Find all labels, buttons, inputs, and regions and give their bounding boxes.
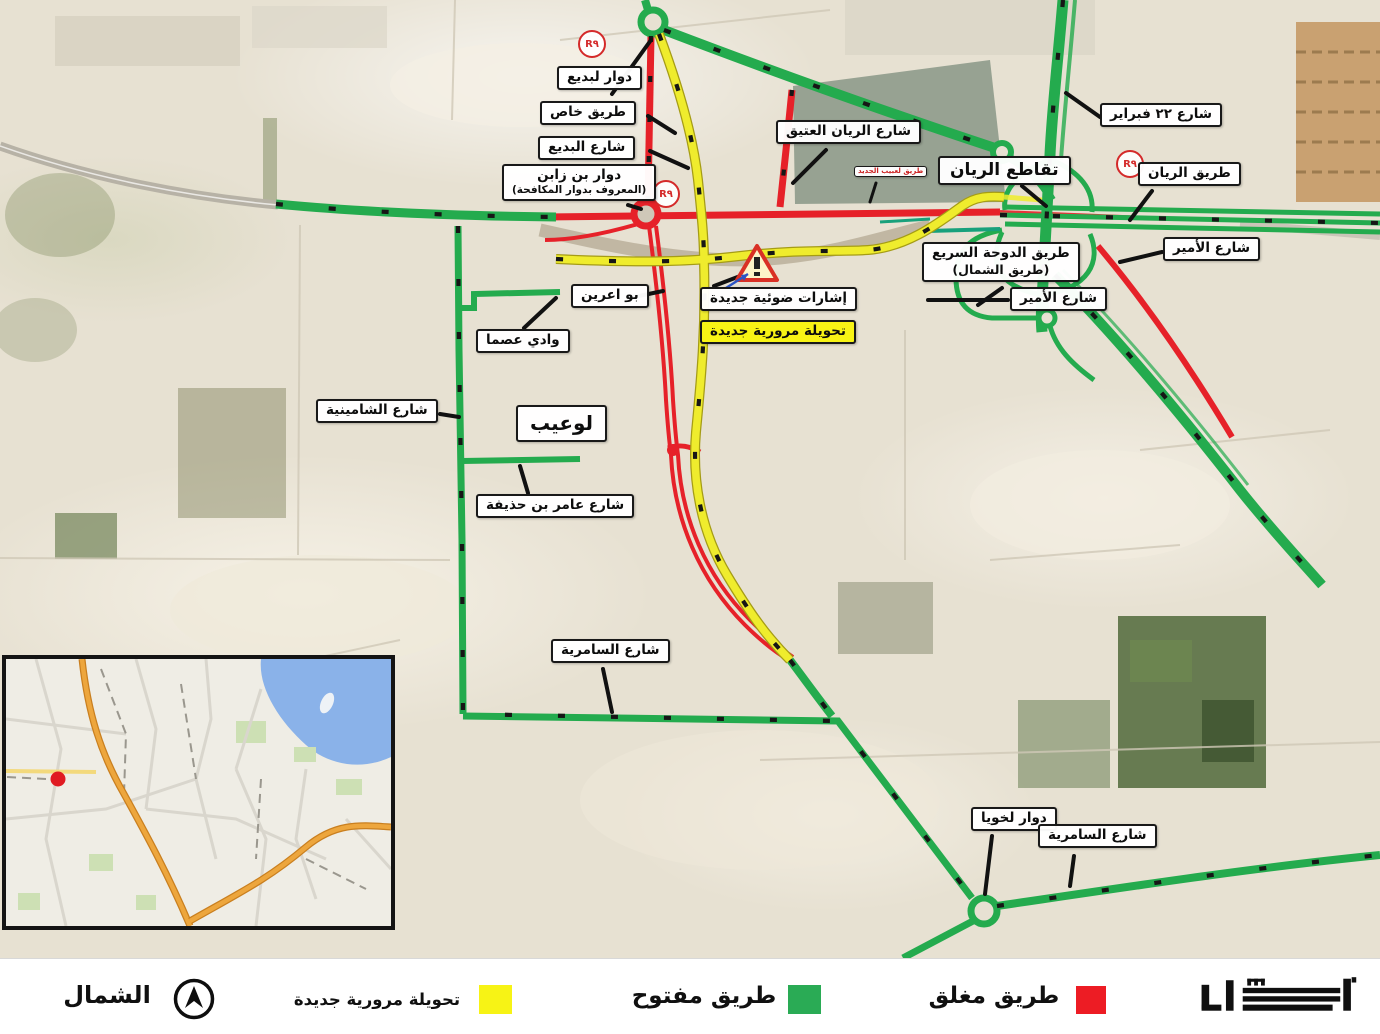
label-new-diversion: تحويلة مرورية جديدة: [700, 320, 856, 344]
label-new-signals: إشارات ضوئية جديدة: [700, 287, 857, 311]
route-badge-r: R٩: [652, 180, 680, 208]
satellite-map: دوار لبديع طريق خاص شارع البديع دوار بن …: [0, 0, 1380, 958]
label-samriya-street-west: شارع السامرية: [551, 639, 670, 663]
label-luaib-district: لوعيب: [516, 405, 607, 442]
label-bin-zaben-line2: (المعروف بدوار المكافحة): [512, 184, 646, 197]
ashghal-logo: [1197, 973, 1357, 1021]
label-private-road: طريق خاص: [540, 101, 636, 125]
label-amir-street-south: شارع الأمير: [1010, 287, 1107, 311]
north-compass-icon: [172, 977, 216, 1021]
label-old-rayyan-street: شارع الريان العتيق: [776, 120, 921, 144]
label-rayyan-intersection: تقاطع الريان: [938, 156, 1071, 185]
label-amer-bin-huthaifa-street: شارع عامر بن حذيفة: [476, 494, 634, 518]
locator-inset-map: [2, 655, 395, 930]
closed-road-east-west: [545, 212, 1000, 217]
label-wadi-asma: وادي عصما: [476, 329, 570, 353]
inset-graphics: [6, 659, 391, 926]
label-rayyan-road: طريق الريان: [1138, 162, 1241, 186]
legend-open-swatch: [788, 985, 821, 1014]
legend-open-label: طريق مفتوح: [628, 983, 780, 1009]
label-bin-zaben-roundabout: دوار بن زابن (المعروف بدوار المكافحة): [502, 164, 656, 201]
legend-north-label: الشمال: [48, 981, 166, 1009]
label-bin-zaben-line1: دوار بن زابن: [537, 167, 621, 183]
label-shamineya-street: شارع الشامينية: [316, 399, 438, 423]
legend-diversion-swatch: [479, 985, 512, 1014]
bin-zaben-roundabout-ring: [634, 202, 658, 226]
legend-closed-label: طريق مغلق: [920, 983, 1068, 1009]
open-road-shamineya: [458, 226, 463, 714]
legend-diversion-label: تحويلة مرورية جديدة: [283, 990, 471, 1009]
diversion-road-ns: [659, 34, 790, 660]
label-doha-expressway-line2: (طريق الشمال): [932, 262, 1070, 278]
label-amir-street-east: شارع الأمير: [1163, 237, 1260, 261]
closed-road-old-rayyan: [780, 90, 792, 207]
label-samriya-street-east: شارع السامرية: [1038, 824, 1157, 848]
route-badge-r: R٩: [578, 30, 606, 58]
open-road-west: [276, 204, 556, 217]
label-bu-aarin: بو اعرين: [571, 284, 649, 308]
label-small-road: طريق لعبيب الجديد: [854, 166, 927, 177]
label-doha-expressway: طريق الدوحة السريع (طريق الشمال): [922, 242, 1080, 282]
amir-loop-ring: [1039, 310, 1055, 326]
label-doha-expressway-line1: طريق الدوحة السريع: [932, 245, 1070, 261]
traffic-diversion-scheme: دوار لبديع طريق خاص شارع البديع دوار بن …: [0, 0, 1380, 1034]
inset-location-marker: [51, 772, 66, 787]
label-feb22-street: شارع ٢٢ فبراير: [1100, 103, 1222, 127]
legend-closed-swatch: [1076, 986, 1106, 1014]
lebday-roundabout-ring: [641, 10, 665, 34]
label-lebday-roundabout: دوار لبديع: [557, 66, 642, 90]
lekhwiya-roundabout-ring: [971, 898, 997, 924]
label-al-bidda-street: شارع البديع: [538, 136, 635, 160]
